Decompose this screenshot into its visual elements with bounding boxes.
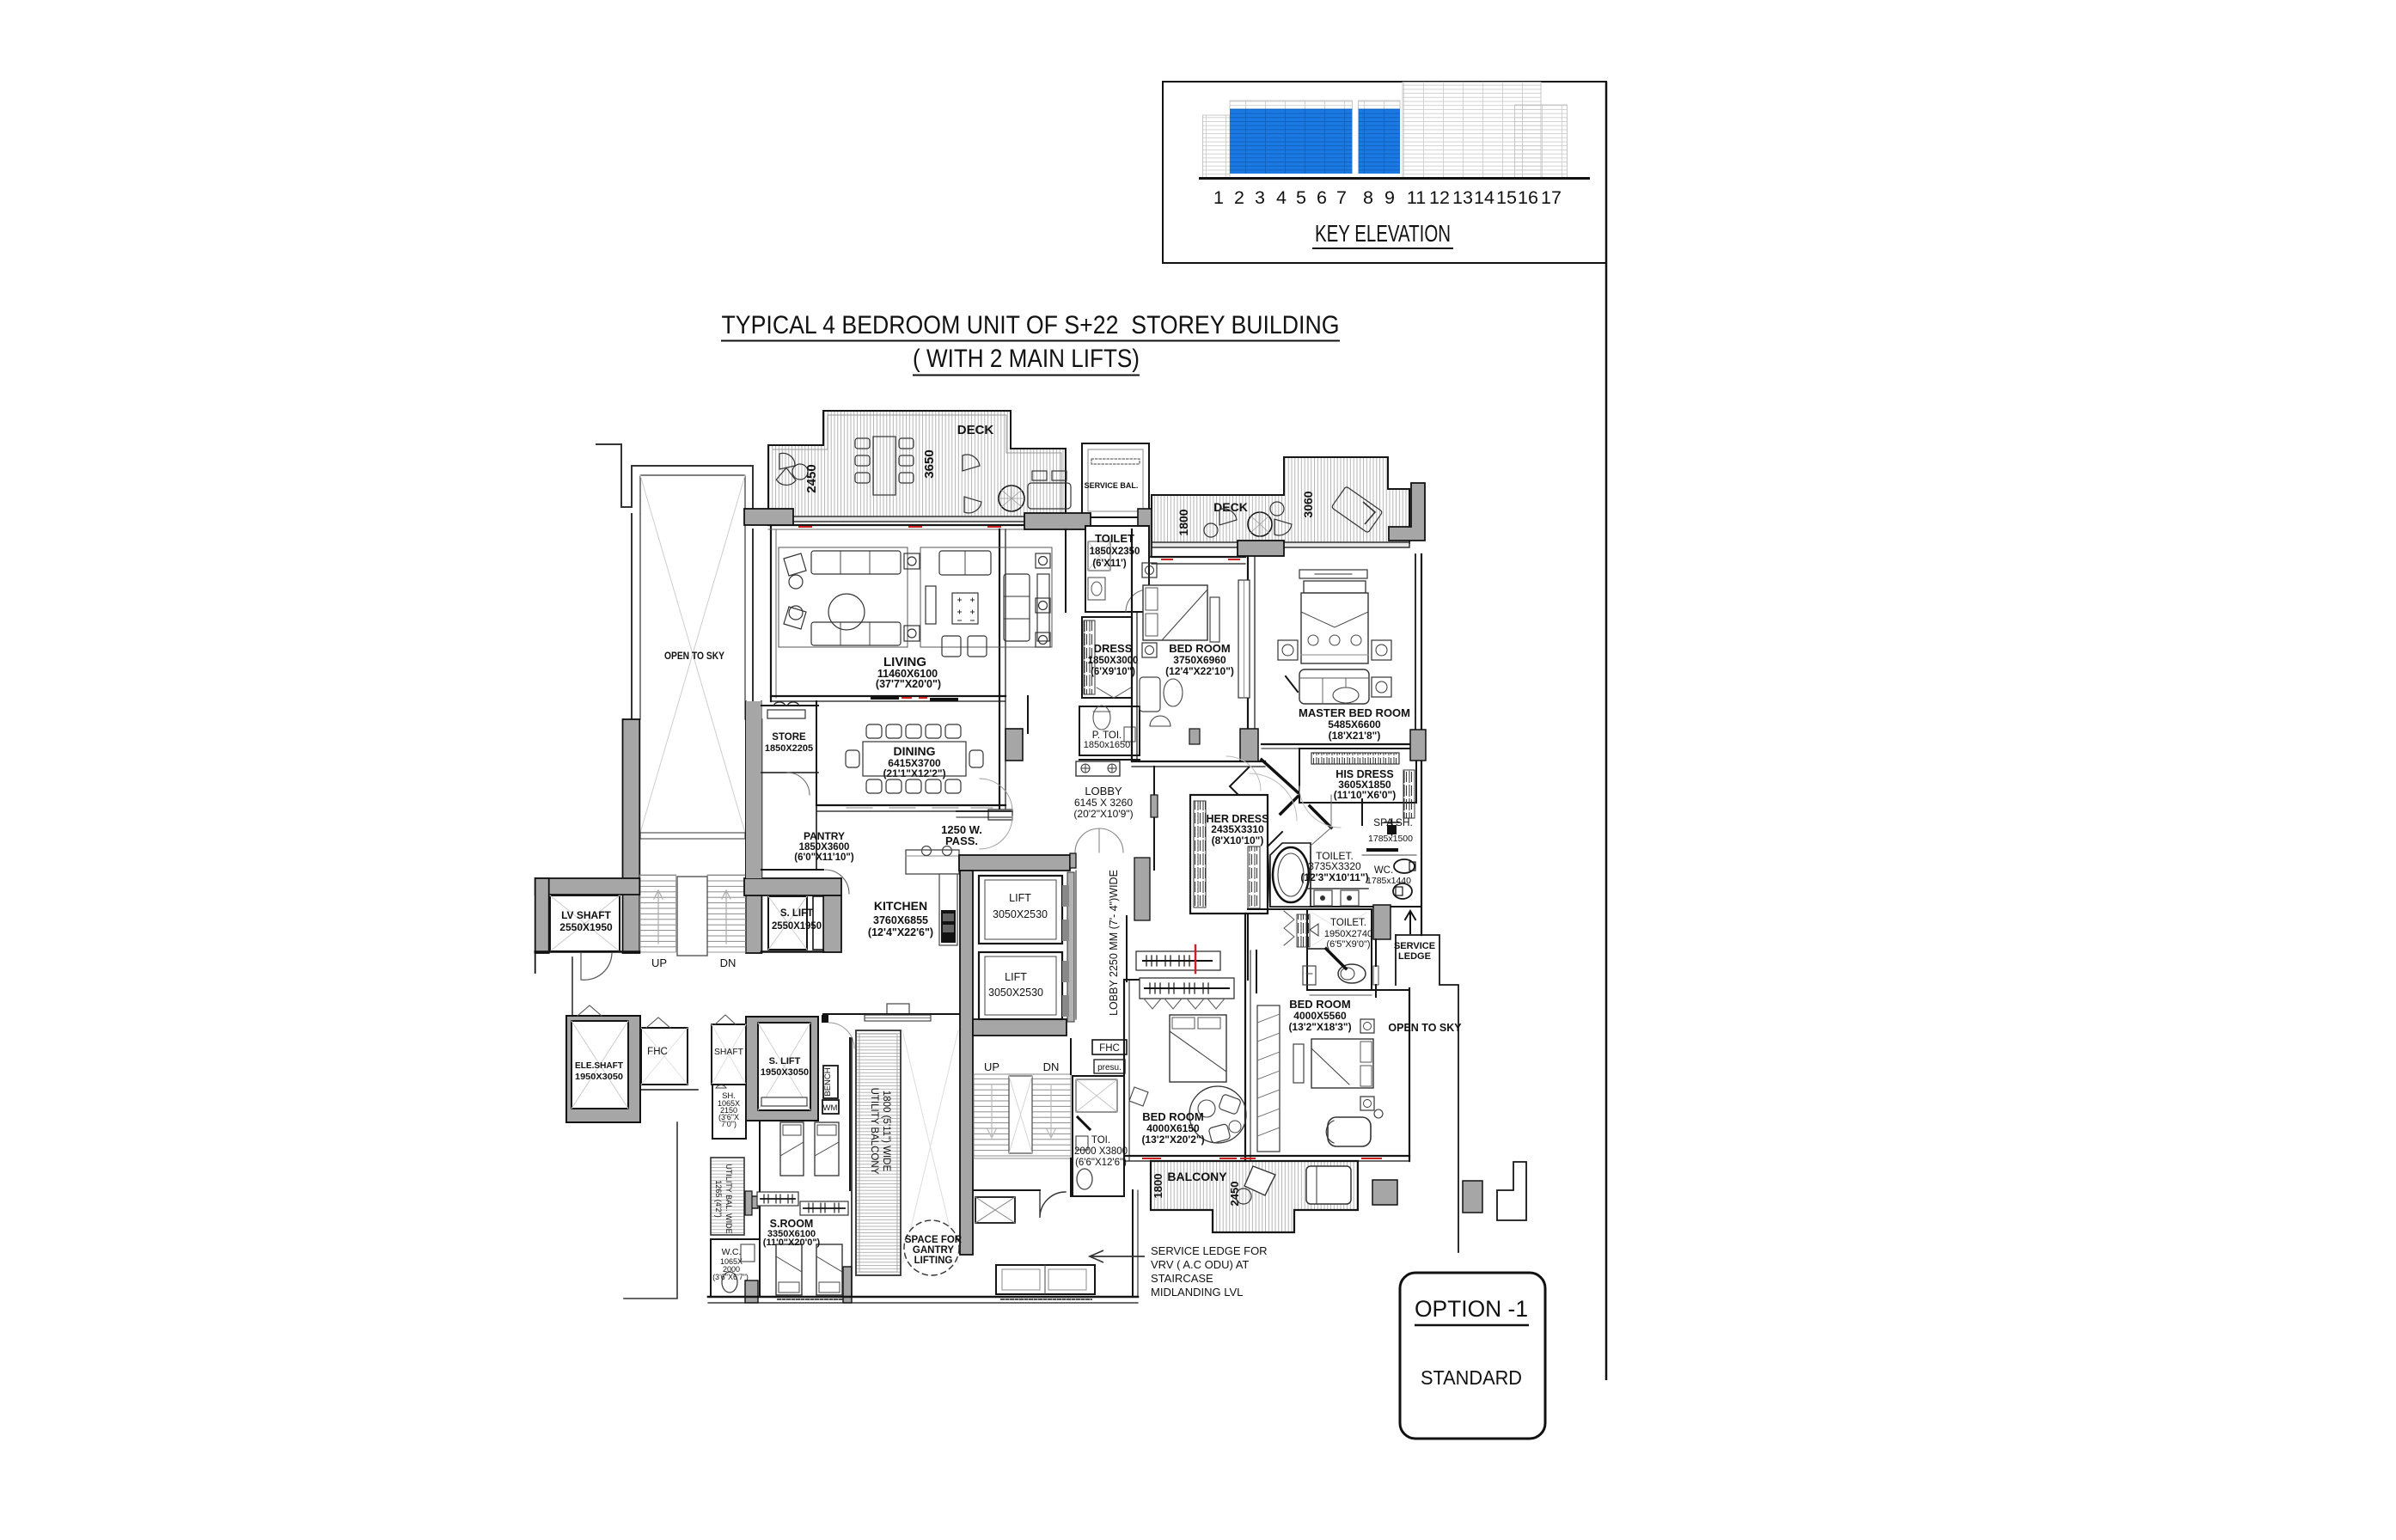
svg-text:2435X3310: 2435X3310 bbox=[1211, 823, 1264, 835]
svg-text:LIFT: LIFT bbox=[1009, 892, 1031, 904]
svg-text:SERVICE: SERVICE bbox=[1394, 941, 1435, 951]
svg-text:1: 1 bbox=[1213, 187, 1224, 208]
svg-text:6145 X 3260: 6145 X 3260 bbox=[1074, 797, 1133, 809]
svg-text:2450: 2450 bbox=[1228, 1182, 1241, 1207]
svg-text:LIFT: LIFT bbox=[1005, 971, 1027, 983]
svg-text:SERVICE BAL.: SERVICE BAL. bbox=[1085, 481, 1139, 490]
svg-text:LIFTING: LIFTING bbox=[914, 1256, 953, 1266]
svg-text:( WITH 2 MAIN LIFTS): ( WITH 2 MAIN LIFTS) bbox=[913, 345, 1140, 373]
svg-text:2550X1950: 2550X1950 bbox=[772, 921, 822, 932]
svg-text:UTILITY BALCONY: UTILITY BALCONY bbox=[869, 1088, 879, 1175]
svg-text:SPA SH.: SPA SH. bbox=[1373, 816, 1413, 828]
svg-text:7'0"): 7'0") bbox=[721, 1120, 737, 1128]
svg-text:3050X2530: 3050X2530 bbox=[993, 908, 1048, 920]
svg-text:13: 13 bbox=[1452, 187, 1473, 208]
svg-text:(21'1"X12'2"): (21'1"X12'2") bbox=[883, 767, 945, 779]
svg-text:6: 6 bbox=[1317, 187, 1327, 208]
svg-text:(13'2"X18'3"): (13'2"X18'3") bbox=[1288, 1021, 1351, 1033]
svg-text:WM: WM bbox=[823, 1103, 838, 1113]
svg-text:1950X3050: 1950X3050 bbox=[761, 1067, 809, 1078]
svg-text:DECK: DECK bbox=[1213, 500, 1248, 514]
svg-text:VRV ( A.C ODU) AT: VRV ( A.C ODU) AT bbox=[1151, 1258, 1249, 1271]
svg-text:presu.: presu. bbox=[1097, 1063, 1122, 1072]
svg-text:3060: 3060 bbox=[1301, 491, 1315, 517]
svg-text:3750X6960: 3750X6960 bbox=[1173, 654, 1226, 666]
svg-text:SERVICE LEDGE FOR: SERVICE LEDGE FOR bbox=[1151, 1244, 1268, 1257]
svg-text:1785x1500: 1785x1500 bbox=[1368, 834, 1413, 844]
svg-text:LOBBY 2250 MM (7'- 4")WIDE: LOBBY 2250 MM (7'- 4")WIDE bbox=[1108, 870, 1120, 1016]
svg-text:FHC: FHC bbox=[1099, 1043, 1120, 1054]
svg-text:(12'4"X22'10"): (12'4"X22'10") bbox=[1165, 665, 1234, 677]
svg-text:STORE: STORE bbox=[772, 732, 806, 742]
svg-text:(11'10"X6'0"): (11'10"X6'0") bbox=[1334, 789, 1396, 801]
svg-text:DRESS: DRESS bbox=[1094, 642, 1133, 655]
svg-text:TOILET: TOILET bbox=[1095, 532, 1134, 545]
svg-text:(6'X9'10"): (6'X9'10") bbox=[1091, 667, 1135, 677]
svg-text:LEDGE: LEDGE bbox=[1398, 951, 1431, 962]
svg-text:2450: 2450 bbox=[804, 464, 819, 492]
svg-text:LOBBY: LOBBY bbox=[1085, 785, 1122, 797]
svg-text:OPEN TO SKY: OPEN TO SKY bbox=[664, 650, 724, 662]
svg-text:3650: 3650 bbox=[922, 449, 937, 478]
svg-text:2550X1950: 2550X1950 bbox=[559, 921, 613, 933]
svg-text:(12'3"X10'11"): (12'3"X10'11") bbox=[1300, 871, 1368, 883]
svg-text:DN: DN bbox=[720, 956, 737, 969]
svg-text:1850X3000: 1850X3000 bbox=[1088, 656, 1139, 666]
svg-text:STAIRCASE: STAIRCASE bbox=[1151, 1272, 1213, 1285]
svg-text:BENCH: BENCH bbox=[823, 1067, 833, 1096]
svg-text:11: 11 bbox=[1407, 187, 1426, 208]
svg-text:S. LIFT: S. LIFT bbox=[769, 1056, 801, 1066]
svg-text:(13'2"X20'2"): (13'2"X20'2") bbox=[1141, 1134, 1204, 1146]
svg-text:W.C.: W.C. bbox=[722, 1247, 742, 1257]
svg-text:S.ROOM: S.ROOM bbox=[770, 1218, 814, 1230]
svg-text:3760X6855: 3760X6855 bbox=[873, 914, 928, 926]
svg-text:(12'4"X22'6"): (12'4"X22'6") bbox=[868, 926, 933, 938]
svg-text:OPTION -1: OPTION -1 bbox=[1415, 1296, 1528, 1322]
svg-text:1850X2205: 1850X2205 bbox=[765, 743, 813, 754]
svg-text:LV SHAFT: LV SHAFT bbox=[561, 909, 611, 921]
svg-text:14: 14 bbox=[1474, 187, 1494, 208]
svg-text:DECK: DECK bbox=[957, 423, 994, 437]
svg-text:UP: UP bbox=[984, 1060, 999, 1073]
svg-text:STANDARD: STANDARD bbox=[1421, 1366, 1522, 1389]
svg-text:KEY ELEVATION: KEY ELEVATION bbox=[1315, 220, 1451, 247]
svg-text:PANTRY: PANTRY bbox=[804, 830, 845, 842]
svg-text:1850X3600: 1850X3600 bbox=[799, 842, 850, 852]
svg-text:8: 8 bbox=[1363, 187, 1373, 208]
svg-text:BED ROOM: BED ROOM bbox=[1169, 642, 1231, 655]
svg-text:4: 4 bbox=[1276, 187, 1287, 208]
svg-text:S. LIFT: S. LIFT bbox=[780, 908, 813, 919]
svg-text:OPEN TO SKY: OPEN TO SKY bbox=[1388, 1022, 1462, 1034]
svg-text:(18'X21'8"): (18'X21'8") bbox=[1329, 730, 1381, 742]
svg-text:FHC: FHC bbox=[647, 1047, 668, 1057]
svg-text:UTILITY BAL. WIDE: UTILITY BAL. WIDE bbox=[724, 1164, 733, 1233]
svg-text:1785x1440: 1785x1440 bbox=[1366, 876, 1411, 886]
svg-text:(6'0"X11'10"): (6'0"X11'10") bbox=[794, 852, 854, 863]
svg-text:(6'6"X12'6"): (6'6"X12'6") bbox=[1075, 1158, 1127, 1168]
svg-text:1800 (5'11") WIDE: 1800 (5'11") WIDE bbox=[881, 1091, 891, 1172]
svg-text:WC.: WC. bbox=[1374, 865, 1393, 876]
svg-text:1850X2350: 1850X2350 bbox=[1090, 547, 1140, 557]
svg-text:GANTRY: GANTRY bbox=[913, 1245, 954, 1256]
svg-text:1950X3050: 1950X3050 bbox=[575, 1072, 623, 1082]
svg-text:KITCHEN: KITCHEN bbox=[874, 899, 927, 913]
svg-text:SPACE FOR: SPACE FOR bbox=[905, 1235, 963, 1245]
svg-text:DINING: DINING bbox=[894, 744, 936, 758]
svg-text:(6'5"X9'0"): (6'5"X9'0") bbox=[1326, 939, 1370, 950]
svg-text:TYPICAL 4 BEDROOM UNIT OF S+22: TYPICAL 4 BEDROOM UNIT OF S+22 STOREY BU… bbox=[722, 311, 1340, 339]
svg-text:TOI.: TOI. bbox=[1091, 1135, 1110, 1146]
svg-text:(11'0"X20'0"): (11'0"X20'0") bbox=[763, 1237, 821, 1248]
svg-text:PASS.: PASS. bbox=[945, 834, 978, 847]
svg-text:1950X2740: 1950X2740 bbox=[1324, 929, 1372, 939]
svg-text:7: 7 bbox=[1336, 187, 1347, 208]
svg-text:ELE.SHAFT: ELE.SHAFT bbox=[575, 1060, 624, 1071]
svg-text:(6'X11'): (6'X11') bbox=[1092, 559, 1127, 569]
svg-text:5: 5 bbox=[1296, 187, 1306, 208]
svg-text:BED ROOM: BED ROOM bbox=[1289, 998, 1351, 1011]
svg-text:(20'2"X10'9"): (20'2"X10'9") bbox=[1073, 808, 1133, 820]
svg-text:(37'7"X20'0"): (37'7"X20'0") bbox=[876, 678, 941, 690]
svg-text:16: 16 bbox=[1518, 187, 1538, 208]
svg-text:1850x1650: 1850x1650 bbox=[1084, 740, 1130, 750]
svg-text:DN: DN bbox=[1043, 1060, 1060, 1073]
svg-text:TOILET.: TOILET. bbox=[1330, 918, 1366, 928]
svg-text:15: 15 bbox=[1496, 187, 1517, 208]
svg-text:12: 12 bbox=[1429, 187, 1450, 208]
svg-text:1800: 1800 bbox=[1177, 509, 1190, 535]
svg-text:17: 17 bbox=[1541, 187, 1562, 208]
svg-text:9: 9 bbox=[1384, 187, 1395, 208]
svg-text:1800: 1800 bbox=[1152, 1174, 1164, 1199]
svg-text:3735X3320: 3735X3320 bbox=[1308, 860, 1361, 872]
svg-text:SHAFT: SHAFT bbox=[714, 1047, 744, 1057]
svg-text:MASTER BED ROOM: MASTER BED ROOM bbox=[1299, 706, 1410, 719]
svg-text:1265 (4'2"): 1265 (4'2") bbox=[714, 1180, 723, 1217]
svg-text:5485X6600: 5485X6600 bbox=[1328, 718, 1381, 730]
svg-text:2000 X3800: 2000 X3800 bbox=[1074, 1146, 1128, 1157]
svg-text:2: 2 bbox=[1234, 187, 1244, 208]
svg-text:BED ROOM: BED ROOM bbox=[1142, 1110, 1204, 1123]
svg-text:3: 3 bbox=[1255, 187, 1265, 208]
svg-text:UP: UP bbox=[651, 956, 667, 969]
svg-text:(3'6"X6'7"): (3'6"X6'7") bbox=[712, 1273, 749, 1281]
svg-text:3050X2530: 3050X2530 bbox=[988, 987, 1043, 999]
svg-text:MIDLANDING LVL: MIDLANDING LVL bbox=[1151, 1286, 1243, 1299]
svg-text:(8'X10'10"): (8'X10'10") bbox=[1212, 834, 1264, 846]
svg-text:BALCONY: BALCONY bbox=[1167, 1170, 1227, 1183]
svg-text:4000X5560: 4000X5560 bbox=[1293, 1010, 1347, 1022]
svg-text:4000X6150: 4000X6150 bbox=[1146, 1122, 1200, 1134]
